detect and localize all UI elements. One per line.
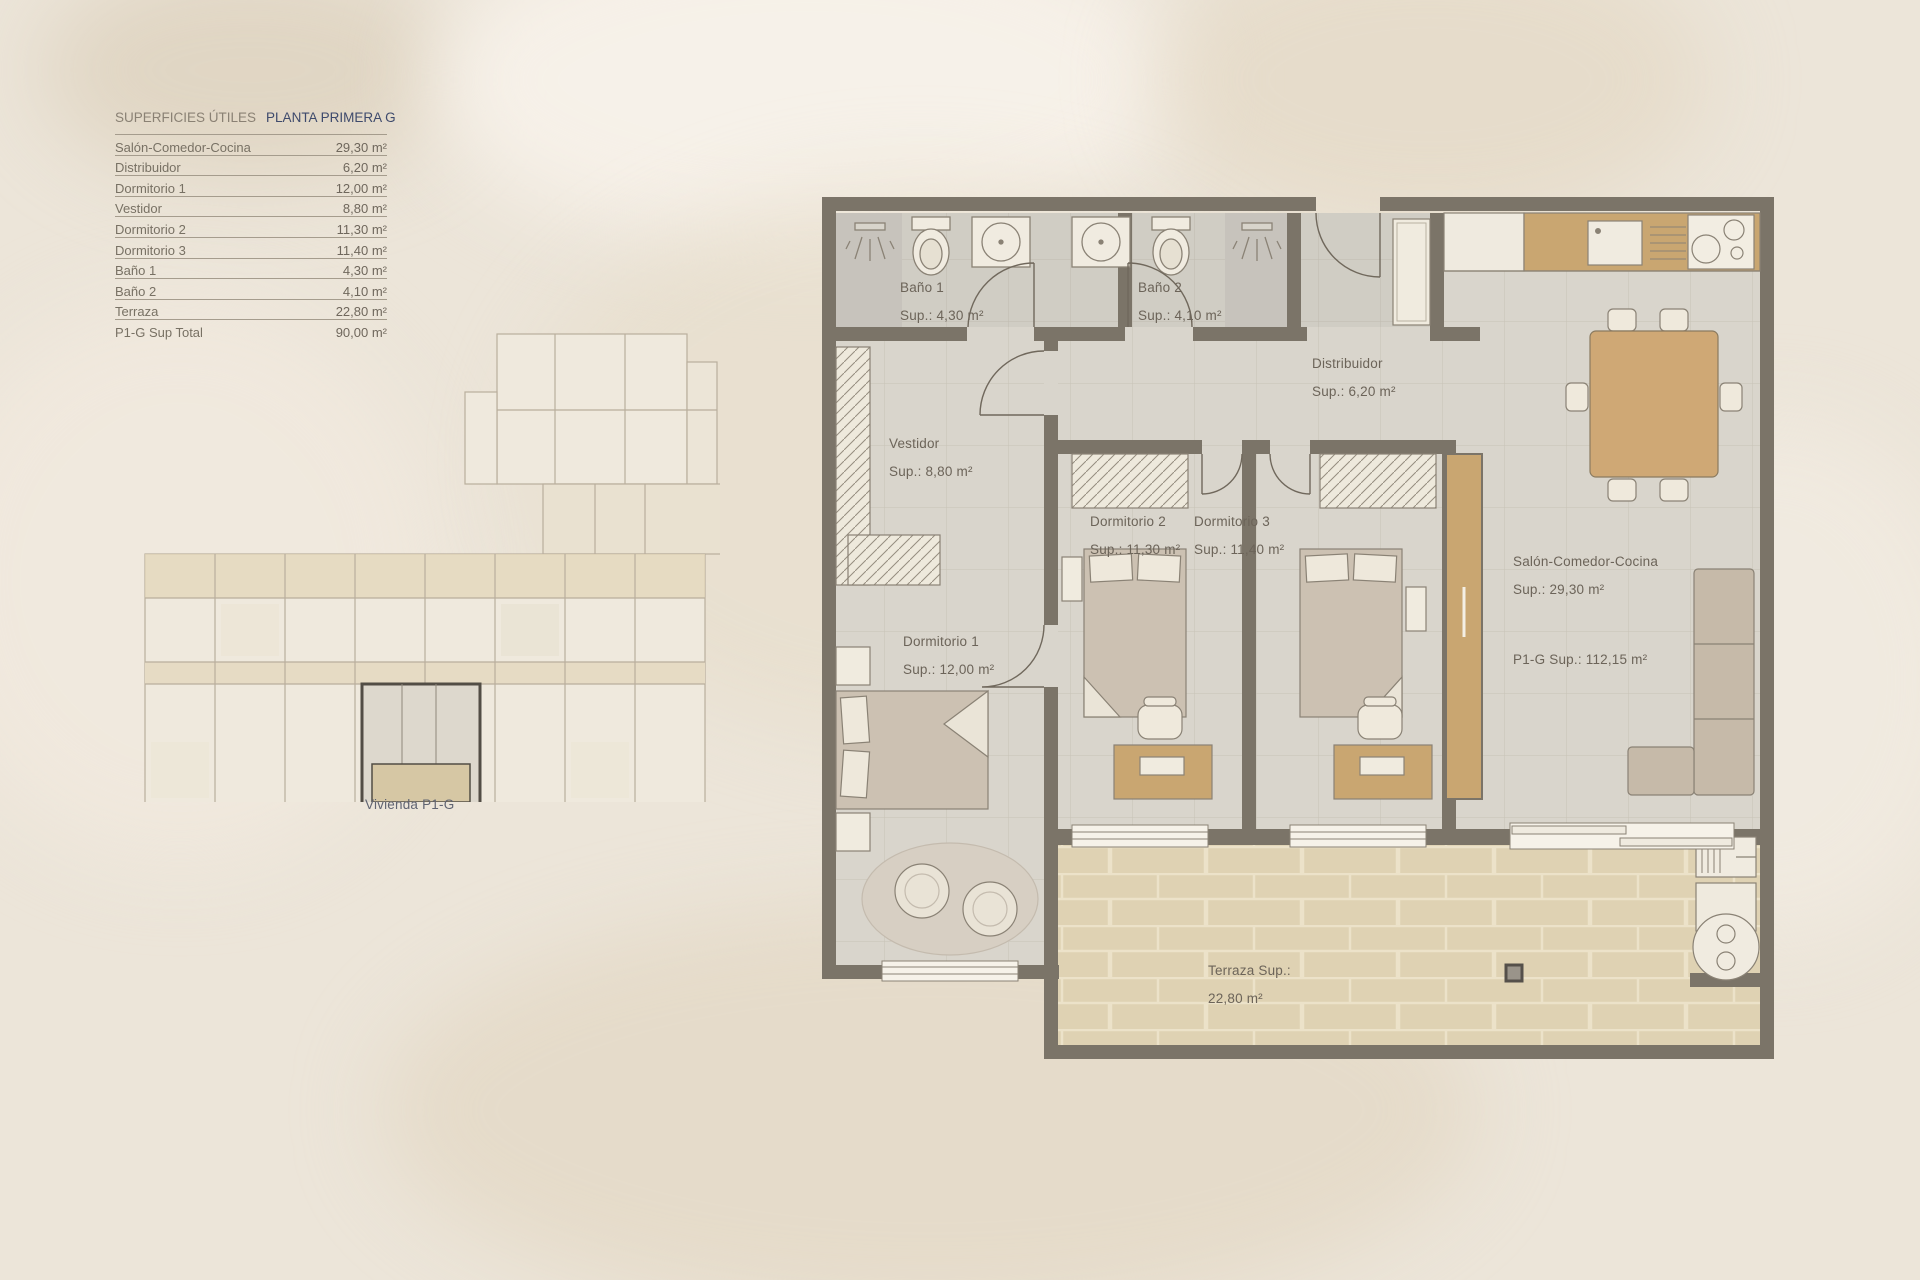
bathroom-sink	[972, 217, 1030, 267]
overview-caption: Vivienda P1-G	[365, 797, 454, 812]
room-label-bano1: Baño 1 Sup.: 4,30 m²	[900, 274, 984, 330]
desk-chair	[1138, 697, 1182, 739]
window	[882, 961, 1018, 981]
wardrobe	[1072, 454, 1188, 508]
desk-chair	[1358, 697, 1402, 739]
room-label-dormitorio2: Dormitorio 2 Sup.: 11,30 m²	[1090, 508, 1180, 564]
entry-closet	[1393, 219, 1430, 325]
terrace-post	[1506, 965, 1522, 981]
nightstand	[836, 647, 870, 685]
watercolor-blob	[1150, 0, 1710, 230]
table-row: Dormitorio 211,30 m²	[115, 216, 387, 237]
kitchen-sink	[1588, 221, 1642, 265]
room-label-dormitorio1: Dormitorio 1 Sup.: 12,00 m²	[903, 628, 994, 684]
surface-table-title: SUPERFICIES ÚTILES	[115, 110, 256, 125]
nightstand	[1062, 557, 1082, 601]
kitchen-counter	[1444, 213, 1760, 271]
desk	[1114, 745, 1212, 799]
nightstand	[836, 813, 870, 851]
table-row: Dormitorio 311,40 m²	[115, 237, 387, 258]
surface-table-header: SUPERFICIES ÚTILES PLANTA PRIMERA G	[115, 110, 387, 125]
wardrobe	[1320, 454, 1436, 508]
bathroom-sink	[1072, 217, 1130, 267]
toilet	[912, 217, 950, 275]
room-label-terraza: Terraza Sup.: 22,80 m²	[1208, 957, 1291, 1013]
room-label-bano2: Baño 2 Sup.: 4,10 m²	[1138, 274, 1222, 330]
table-row: P1-G Sup Total90,00 m²	[115, 319, 387, 340]
overview-plan	[125, 332, 720, 802]
table-row: Baño 14,30 m²	[115, 258, 387, 279]
cooktop	[1688, 215, 1754, 269]
dining-table	[1566, 309, 1742, 501]
room-label-salon: Salón-Comedor-Cocina Sup.: 29,30 m² P1-G…	[1513, 548, 1658, 674]
armchair	[963, 882, 1017, 936]
room-label-dormitorio3: Dormitorio 3 Sup.: 11,40 m²	[1194, 508, 1284, 564]
double-bed	[1084, 549, 1186, 717]
table-row: Distribuidor6,20 m²	[115, 155, 387, 176]
table-row: Salón-Comedor-Cocina29,30 m²	[115, 134, 387, 155]
surface-table-plant: PLANTA PRIMERA G	[266, 110, 396, 125]
overview-building-wing	[465, 334, 720, 554]
table-row: Baño 24,10 m²	[115, 278, 387, 299]
armchair	[895, 864, 949, 918]
surface-table: SUPERFICIES ÚTILES PLANTA PRIMERA G Saló…	[115, 110, 387, 340]
page-background: SUPERFICIES ÚTILES PLANTA PRIMERA G Saló…	[0, 0, 1920, 1280]
barbecue	[1693, 914, 1759, 980]
window	[1072, 825, 1208, 847]
table-row: Terraza22,80 m²	[115, 299, 387, 320]
double-bed	[1300, 549, 1402, 717]
table-row: Vestidor8,80 m²	[115, 196, 387, 217]
terrace-floor	[1058, 845, 1760, 1045]
window	[1290, 825, 1426, 847]
toilet	[1152, 217, 1190, 275]
sliding-door	[1510, 823, 1734, 849]
table-row: Dormitorio 112,00 m²	[115, 175, 387, 196]
overview-highlighted-unit	[362, 684, 480, 802]
desk	[1334, 745, 1432, 799]
nightstand	[1406, 587, 1426, 631]
room-label-vestidor: Vestidor Sup.: 8,80 m²	[889, 430, 973, 486]
room-label-distribuidor: Distribuidor Sup.: 6,20 m²	[1312, 350, 1396, 406]
double-bed	[836, 691, 988, 809]
